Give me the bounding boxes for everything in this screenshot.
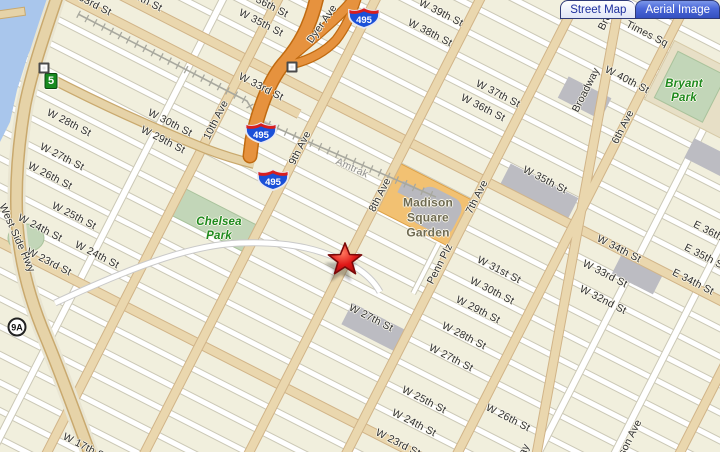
svg-text:495: 495 (356, 15, 373, 26)
interstate-495-shield: 495 (347, 5, 381, 29)
tab-street-map[interactable]: Street Map (560, 0, 635, 19)
map-markers-layer: 495 495 495 9A5 (0, 0, 720, 452)
poi-square-icon (39, 63, 50, 74)
poi-square-icon (287, 62, 298, 73)
route-9a-shield: 9A (8, 318, 27, 337)
poi-5-marker: 5 (45, 73, 58, 89)
interstate-495-shield: 495 (244, 120, 278, 144)
location-star-marker[interactable] (323, 239, 367, 283)
tab-aerial-image[interactable]: Aerial Image (635, 0, 720, 19)
svg-text:495: 495 (253, 130, 270, 141)
map-canvas[interactable]: W 33rd StW 34th StW 36th StW 35th StW 33… (0, 0, 720, 452)
svg-text:495: 495 (265, 177, 282, 188)
interstate-495-shield: 495 (256, 167, 290, 191)
map-view-tabs: Street Map Aerial Image (560, 0, 720, 19)
